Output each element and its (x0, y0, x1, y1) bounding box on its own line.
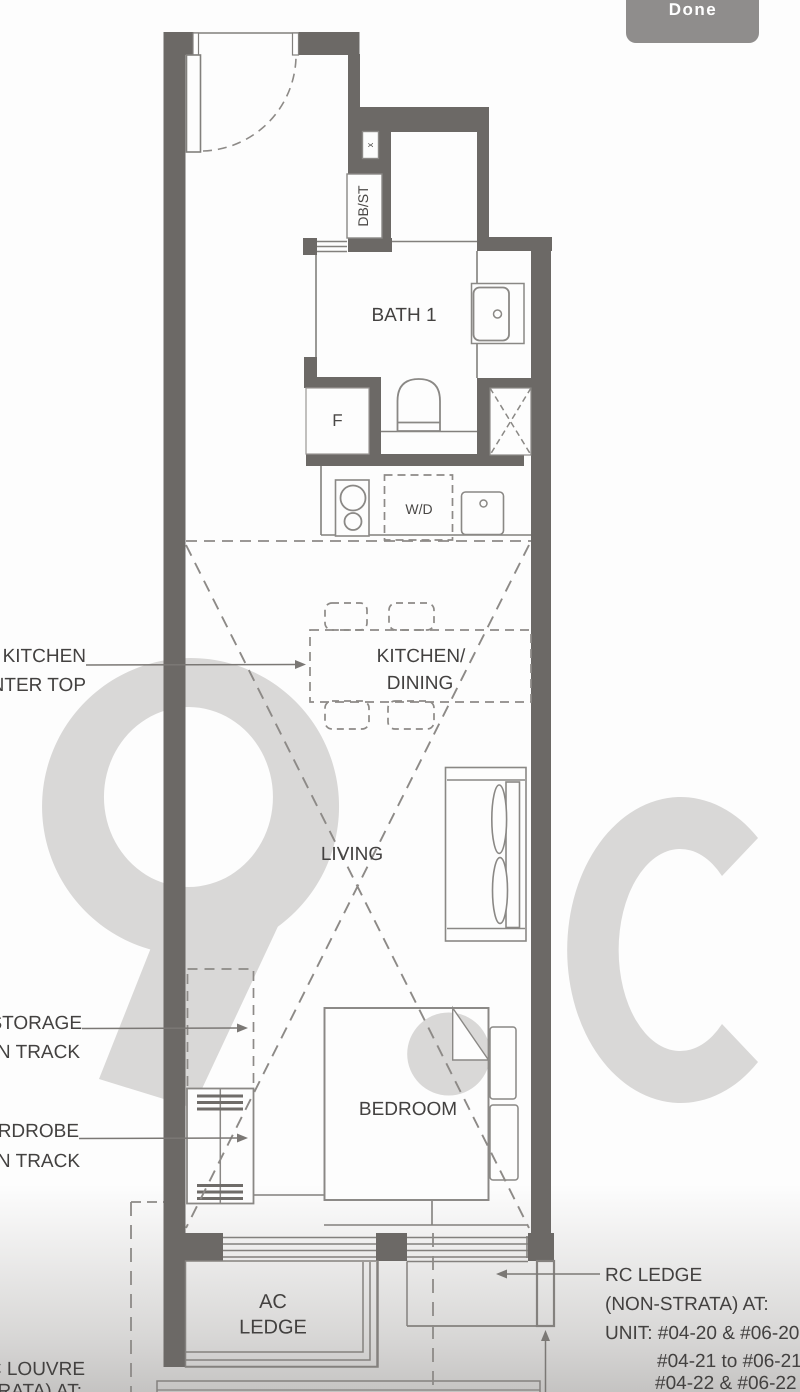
svg-text:x: x (365, 142, 375, 147)
svg-text:BATH 1: BATH 1 (371, 305, 436, 326)
svg-text:(NON-STRATA) AT:: (NON-STRATA) AT: (605, 1294, 769, 1315)
svg-text:KITCHEN: KITCHEN (3, 646, 86, 667)
svg-text:WARDROBE: WARDROBE (0, 1121, 79, 1142)
svg-text:DINING: DINING (387, 673, 454, 694)
svg-text:AC LOUVRE: AC LOUVRE (0, 1359, 85, 1380)
svg-text:F: F (332, 411, 342, 430)
svg-text:UNIT: #04-20 & #06-20: UNIT: #04-20 & #06-20 (605, 1323, 799, 1344)
svg-text:BEDROOM: BEDROOM (359, 1099, 457, 1120)
svg-text:ON TRACK: ON TRACK (0, 1042, 80, 1063)
svg-text:LEDGE: LEDGE (239, 1317, 307, 1339)
svg-text:AC: AC (259, 1291, 287, 1313)
svg-text:(NON-STRATA) AT:: (NON-STRATA) AT: (0, 1381, 82, 1392)
svg-text:STORAGE: STORAGE (0, 1013, 82, 1034)
svg-text:Done: Done (669, 0, 718, 19)
svg-text:#04-22 & #06-22: #04-22 & #06-22 (655, 1373, 797, 1392)
svg-text:W/D: W/D (405, 501, 432, 517)
svg-text:DB/ST: DB/ST (355, 185, 371, 227)
svg-text:#04-21 to #06-21: #04-21 to #06-21 (657, 1351, 800, 1372)
svg-text:ON TRACK: ON TRACK (0, 1151, 80, 1172)
svg-text:LIVING: LIVING (321, 844, 383, 865)
svg-text:RC LEDGE: RC LEDGE (605, 1265, 702, 1286)
svg-text:KITCHEN/: KITCHEN/ (377, 646, 466, 667)
svg-text:COUNTER TOP: COUNTER TOP (0, 675, 86, 696)
